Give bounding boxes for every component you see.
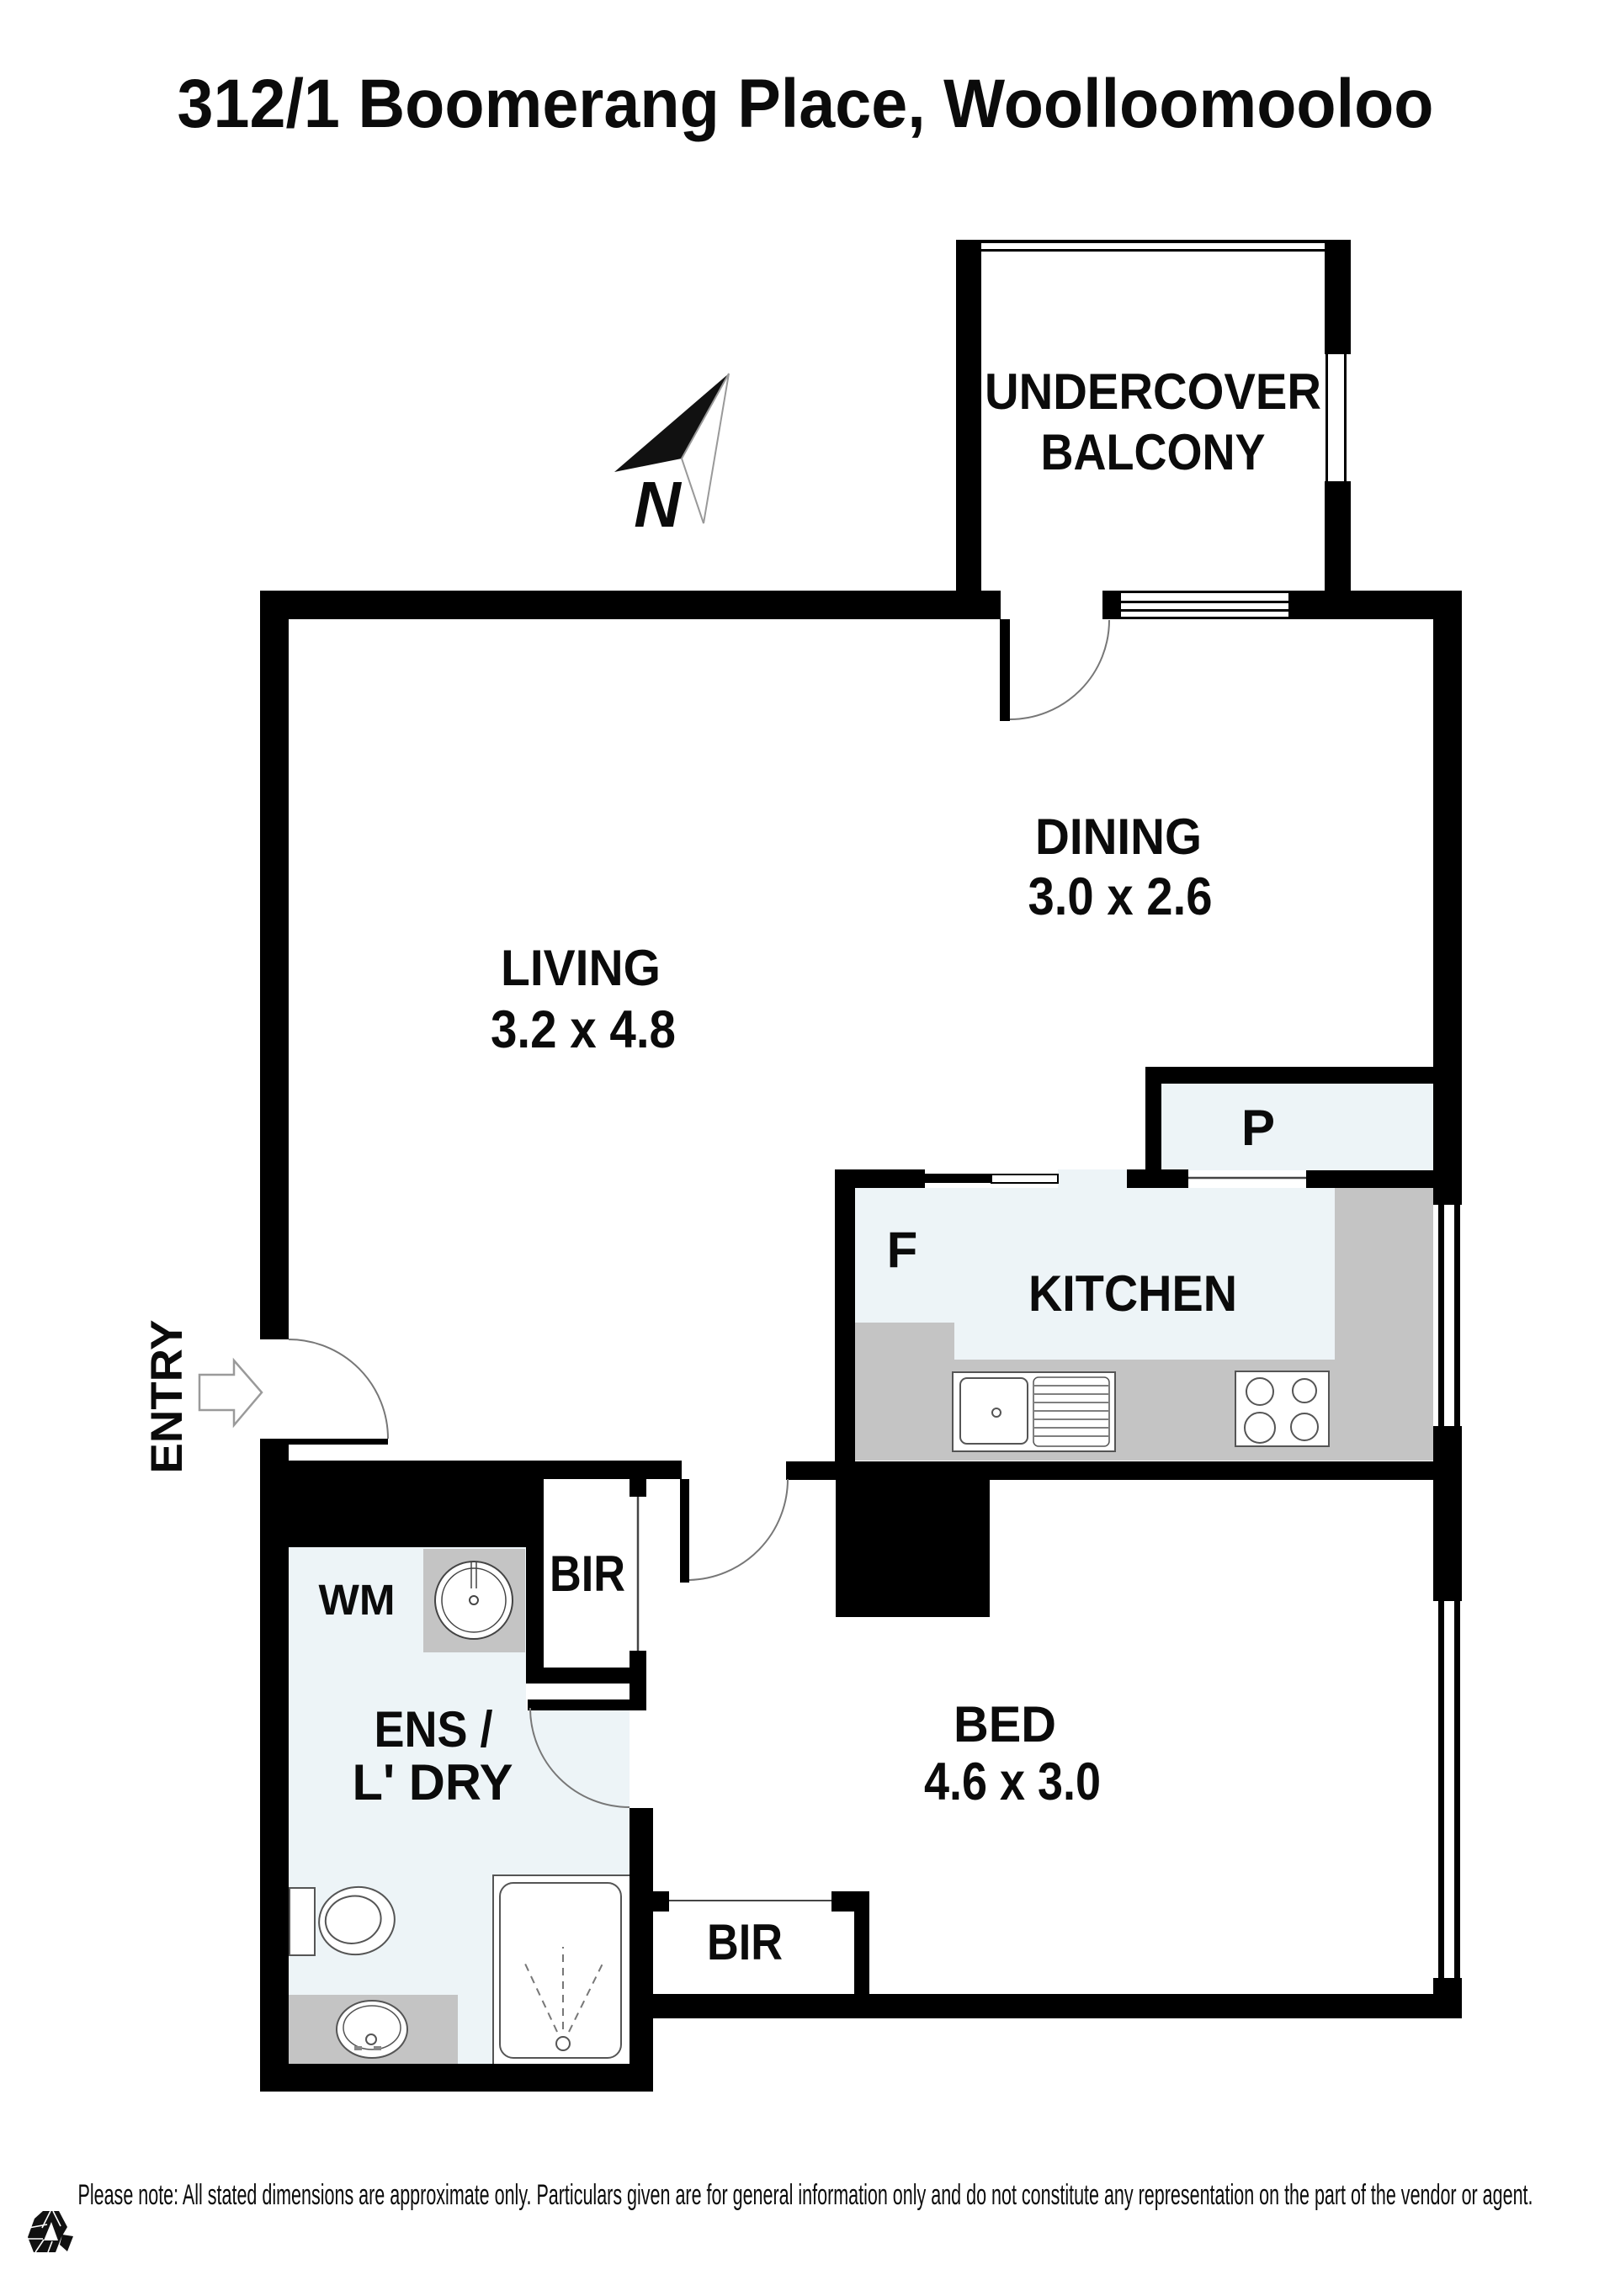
- svg-text:4.6 x 3.0: 4.6 x 3.0: [924, 1752, 1101, 1811]
- svg-text:3.0 x 2.6: 3.0 x 2.6: [1028, 867, 1213, 926]
- svg-text:3.2 x 4.8: 3.2 x 4.8: [491, 1000, 676, 1059]
- svg-text:P: P: [1241, 1100, 1275, 1156]
- svg-text:ENTRY: ENTRY: [142, 1320, 192, 1474]
- svg-text:312/1 Boomerang Place, Woolloo: 312/1 Boomerang Place, Woolloomooloo: [178, 66, 1434, 142]
- svg-text:BALCONY: BALCONY: [1041, 424, 1266, 480]
- svg-text:F: F: [887, 1222, 918, 1278]
- svg-text:BED: BED: [954, 1696, 1056, 1752]
- svg-text:L' DRY: L' DRY: [353, 1754, 513, 1811]
- svg-text:LIVING: LIVING: [501, 940, 661, 996]
- svg-text:BIR: BIR: [707, 1914, 783, 1970]
- svg-text:UNDERCOVER: UNDERCOVER: [985, 363, 1321, 420]
- svg-text:ENS /: ENS /: [375, 1701, 493, 1758]
- svg-text:N: N: [634, 469, 682, 541]
- svg-text:WM: WM: [319, 1576, 396, 1624]
- svg-text:DINING: DINING: [1035, 809, 1202, 865]
- svg-text:BIR: BIR: [550, 1546, 625, 1602]
- svg-text:Please note: All stated dimens: Please note: All stated dimensions are a…: [78, 2179, 1533, 2211]
- svg-text:KITCHEN: KITCHEN: [1028, 1265, 1237, 1322]
